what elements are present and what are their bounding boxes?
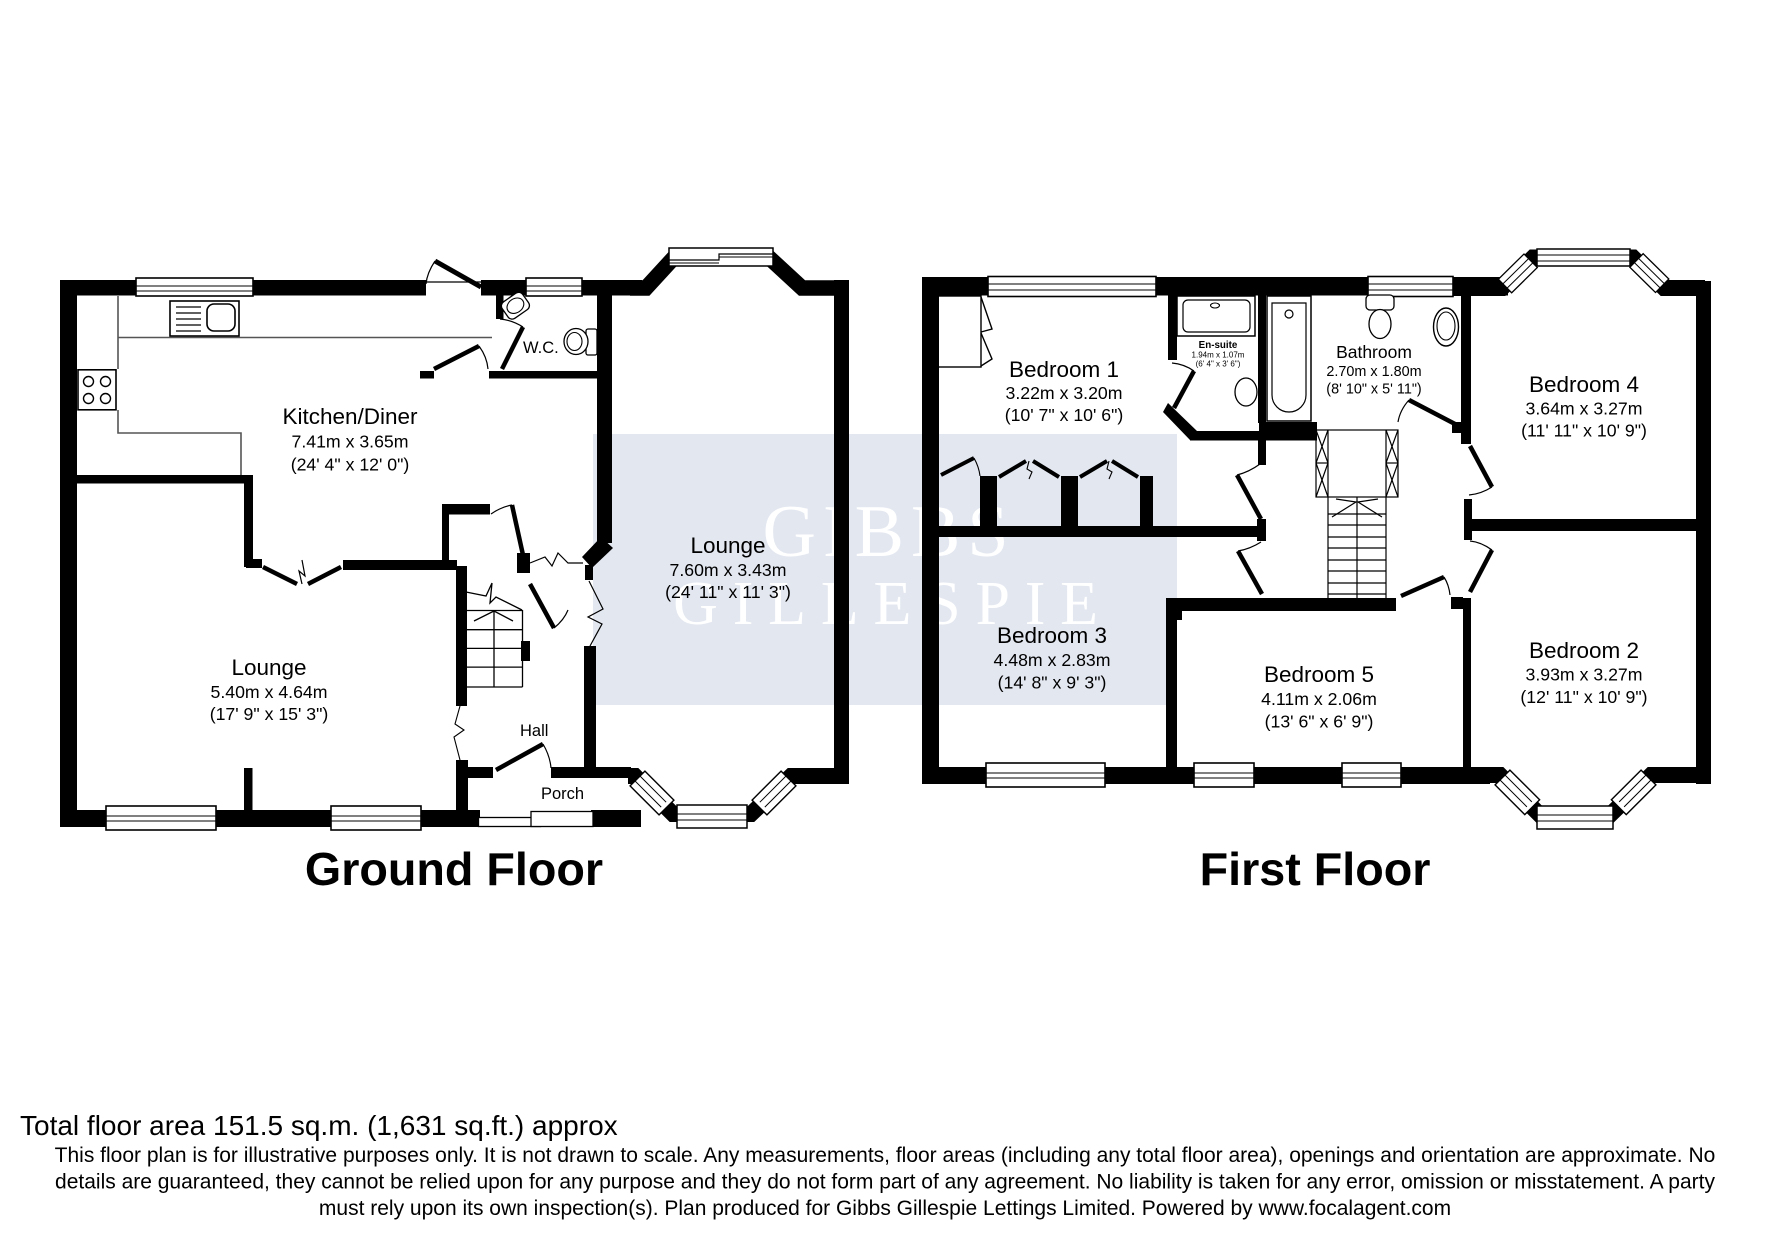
svg-text:3.22m x 3.20m: 3.22m x 3.20m xyxy=(1006,383,1123,403)
svg-text:Kitchen/Diner: Kitchen/Diner xyxy=(282,404,418,429)
svg-text:(17' 9" x 15' 3"): (17' 9" x 15' 3") xyxy=(210,704,329,724)
svg-text:This floor plan is for illustr: This floor plan is for illustrative purp… xyxy=(55,1144,1716,1167)
svg-text:3.64m x 3.27m: 3.64m x 3.27m xyxy=(1526,399,1643,419)
svg-text:7.41m x 3.65m: 7.41m x 3.65m xyxy=(292,432,409,452)
svg-text:4.11m x 2.06m: 4.11m x 2.06m xyxy=(1261,689,1377,709)
svg-text:(24' 11" x 11' 3"): (24' 11" x 11' 3") xyxy=(665,582,791,602)
svg-text:3.93m x 3.27m: 3.93m x 3.27m xyxy=(1526,665,1643,685)
svg-text:(14' 8" x 9' 3"): (14' 8" x 9' 3") xyxy=(998,673,1107,693)
svg-text:Bedroom 1: Bedroom 1 xyxy=(1009,357,1119,382)
svg-text:must rely upon its own inspect: must rely upon its own inspection(s). Pl… xyxy=(319,1197,1451,1220)
svg-text:En-suite: En-suite xyxy=(1199,340,1238,351)
svg-text:Bedroom 2: Bedroom 2 xyxy=(1529,638,1639,663)
svg-text:details are guaranteed, they c: details are guaranteed, they cannot be r… xyxy=(55,1171,1715,1194)
svg-text:Porch: Porch xyxy=(541,785,584,803)
svg-text:(8' 10" x 5' 11"): (8' 10" x 5' 11") xyxy=(1326,382,1421,398)
svg-text:W.C.: W.C. xyxy=(523,339,559,357)
svg-text:Ground Floor: Ground Floor xyxy=(305,843,603,895)
svg-text:Lounge: Lounge xyxy=(231,655,306,680)
svg-text:2.70m x 1.80m: 2.70m x 1.80m xyxy=(1326,364,1421,380)
svg-text:(6' 4" x 3' 6"): (6' 4" x 3' 6") xyxy=(1196,360,1241,369)
svg-text:Bedroom 5: Bedroom 5 xyxy=(1264,662,1374,687)
svg-text:5.40m x 4.64m: 5.40m x 4.64m xyxy=(211,682,328,702)
svg-text:Bedroom 4: Bedroom 4 xyxy=(1529,372,1639,397)
svg-text:(10' 7" x 10' 6"): (10' 7" x 10' 6") xyxy=(1005,405,1124,425)
svg-text:4.48m x 2.83m: 4.48m x 2.83m xyxy=(994,650,1111,670)
svg-text:First Floor: First Floor xyxy=(1200,843,1431,895)
svg-text:Bedroom 3: Bedroom 3 xyxy=(997,623,1107,648)
svg-text:(24' 4" x 12' 0"): (24' 4" x 12' 0") xyxy=(291,455,410,475)
svg-text:(13' 6" x 6' 9"): (13' 6" x 6' 9") xyxy=(1265,712,1374,732)
svg-text:1.94m x 1.07m: 1.94m x 1.07m xyxy=(1192,351,1245,360)
svg-text:(11' 11" x 10' 9"): (11' 11" x 10' 9") xyxy=(1521,421,1647,441)
svg-text:Bathroom: Bathroom xyxy=(1336,342,1412,362)
svg-text:Lounge: Lounge xyxy=(690,533,765,558)
svg-text:Hall: Hall xyxy=(520,722,548,740)
svg-text:(12' 11" x 10' 9"): (12' 11" x 10' 9") xyxy=(1520,687,1647,707)
svg-text:Total floor area 151.5 sq.m. (: Total floor area 151.5 sq.m. (1,631 sq.f… xyxy=(20,1110,618,1141)
svg-text:7.60m x 3.43m: 7.60m x 3.43m xyxy=(670,560,787,580)
